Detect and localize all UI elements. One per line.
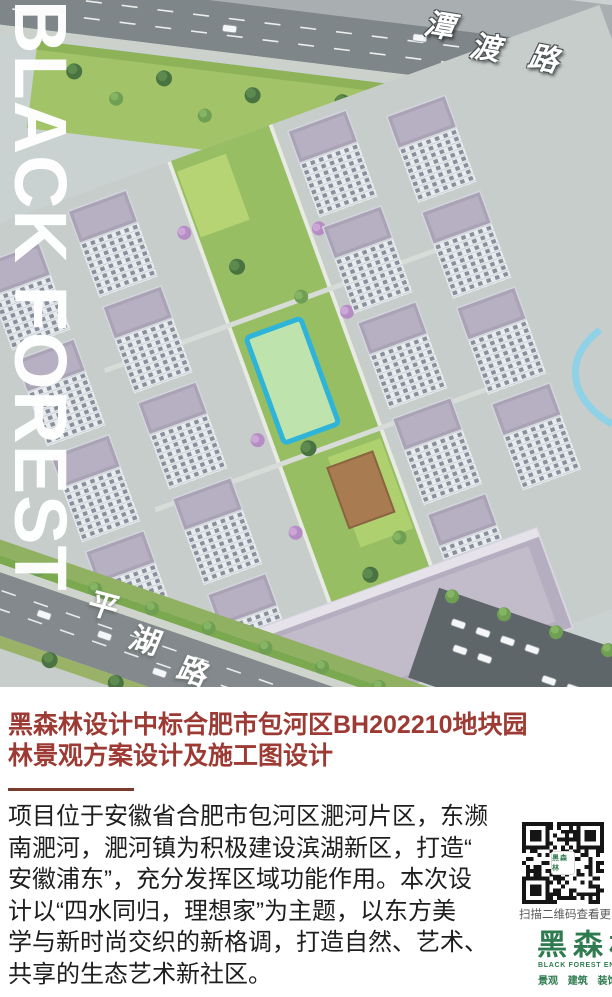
body-line: 南淝河，淝河镇为积极建设滨湖新区，打造“ xyxy=(8,833,520,865)
body-line: 安徽浦东”，充分发挥区域功能作用。本次设 xyxy=(8,864,520,896)
road-label-tandu-char-1: 潭 xyxy=(422,10,456,44)
qr-code[interactable]: 黑森林 xyxy=(522,822,604,904)
body-line: 计以“四水同归，理想家”为主题，以东方美 xyxy=(8,896,520,928)
article-page: BLACK FOREST 潭 渡 路 平 湖 路 黑森林设计中标合肥市包河区BH… xyxy=(0,0,612,997)
qr-center-logo: 黑森林 xyxy=(551,851,575,875)
road-label-tandu-char-2: 渡 xyxy=(468,32,502,66)
brand-logotype: 黑森林 xyxy=(537,921,612,963)
body-line: 项目位于安徽省合肥市包河区淝河片区，东濒 xyxy=(8,801,520,833)
article-headline: 黑森林设计中标合肥市包河区BH202210地块园 林景观方案设计及施工图设计 xyxy=(8,710,514,772)
qr-center-logo-text: 黑森林 xyxy=(552,853,574,873)
headline-line-2: 林景观方案设计及施工图设计 xyxy=(8,741,514,772)
watermark-vertical-text: BLACK FOREST xyxy=(3,0,77,687)
body-paragraph: 项目位于安徽省合肥市包河区淝河片区，东濒 南淝河，淝河镇为积极建设滨湖新区，打造… xyxy=(8,801,520,990)
qr-caption: 扫描二维码查看更多信息 xyxy=(519,906,612,922)
brand-subtitle-en: BLACK FOREST ENVIRONMENT xyxy=(538,962,612,969)
headline-line-1: 黑森林设计中标合肥市包河区BH202210地块园 xyxy=(8,710,514,741)
brand-categories: 景观 建筑 装饰 市政 xyxy=(538,972,612,987)
body-line: 学与新时尚交织的新格调，打造自然、艺术、 xyxy=(8,927,520,959)
road-label-tandu-char-3: 路 xyxy=(525,42,560,77)
aerial-rendering-illustration xyxy=(0,0,612,687)
body-line: 共享的生态艺术新社区。 xyxy=(8,959,520,991)
hero-image: BLACK FOREST 潭 渡 路 平 湖 路 xyxy=(0,0,612,687)
headline-divider xyxy=(8,788,134,791)
